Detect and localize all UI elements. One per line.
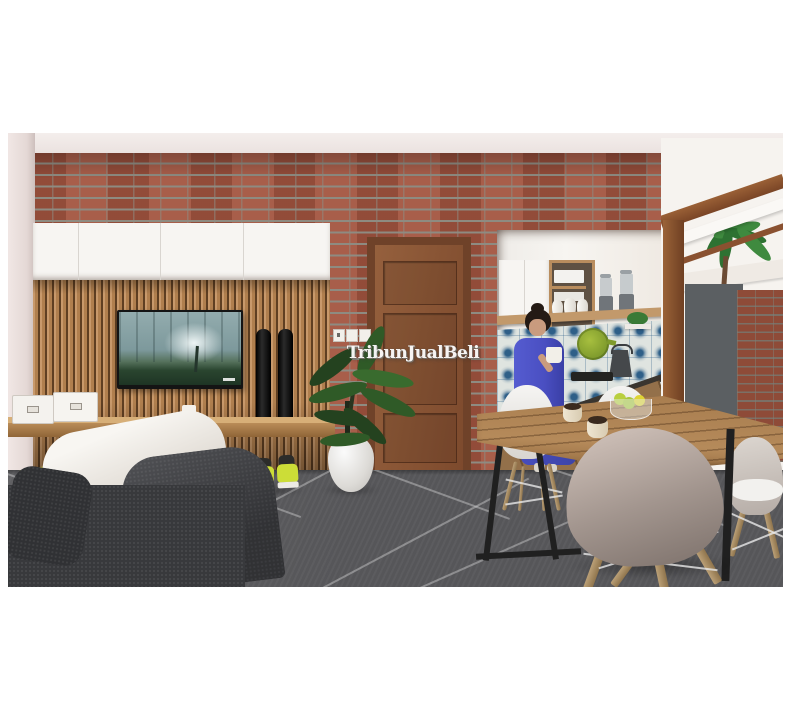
tv [117, 310, 243, 389]
light-switch [346, 329, 358, 342]
cabinet-seam [160, 223, 161, 280]
speaker-right [278, 329, 293, 421]
box-label-slot [70, 403, 82, 410]
storage-box [53, 392, 98, 422]
speaker-left [256, 329, 271, 421]
sneaker-sole [278, 481, 299, 488]
watermark: TribunJualBeli [338, 343, 488, 367]
upper-cabinets [33, 223, 330, 280]
box-label-slot [27, 406, 39, 413]
tv-brand-logo [223, 378, 235, 381]
cup-coffee [588, 416, 607, 424]
mug [546, 347, 562, 363]
tv-screen [119, 312, 241, 385]
coffee-cup [563, 403, 582, 422]
screenshot-canvas: TribunJualBeli [0, 0, 800, 720]
fruit-bowl [610, 395, 650, 420]
blender-jar [600, 278, 612, 296]
wall-shelf [625, 324, 651, 329]
hanging-colander [577, 328, 609, 360]
sneaker-body [277, 463, 299, 482]
sofa-pillow [8, 463, 95, 568]
chair-seat-edge [730, 479, 783, 501]
sneaker [276, 454, 299, 489]
face [529, 319, 546, 336]
light-switches [333, 329, 371, 341]
blender-jar [620, 274, 633, 294]
light-switch [333, 329, 345, 342]
door-panel [383, 261, 457, 305]
glass-bowl [610, 399, 652, 420]
tv-blossom-tree [163, 322, 225, 364]
cooktop [571, 372, 613, 381]
switch-toggle [337, 333, 340, 337]
storage-box [12, 395, 54, 424]
appliance-box [554, 270, 584, 283]
cabinet-seam [78, 223, 79, 280]
door-panel [383, 413, 457, 463]
cup-coffee [564, 403, 581, 410]
shelf-board [552, 286, 586, 289]
cabinet-seam [243, 223, 244, 280]
chair-shell [727, 437, 783, 515]
coffee-cup [587, 416, 608, 438]
interior-render: TribunJualBeli [8, 133, 783, 587]
